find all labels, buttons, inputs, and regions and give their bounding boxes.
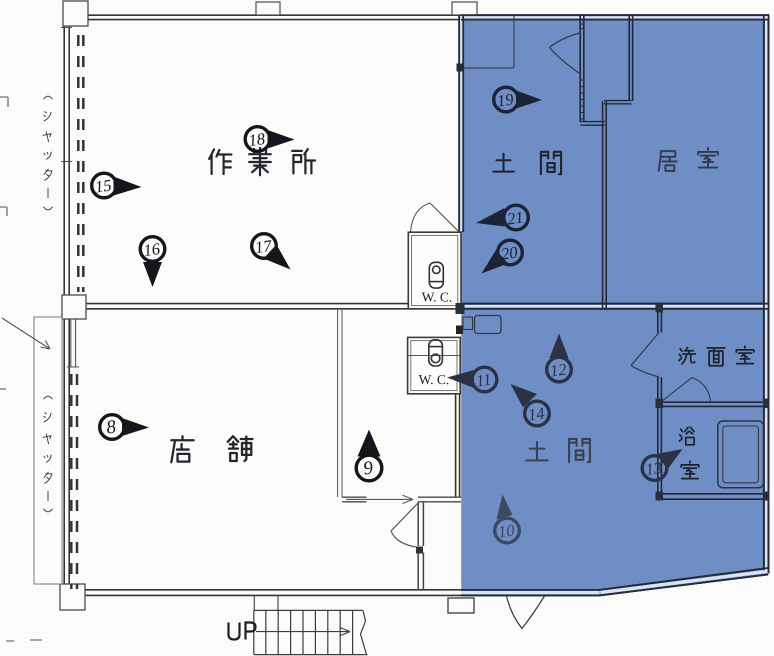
svg-text:14: 14 — [527, 403, 546, 424]
svg-text:18: 18 — [247, 129, 267, 150]
svg-text:19: 19 — [496, 89, 515, 110]
svg-text:11: 11 — [475, 370, 493, 391]
svg-text:20: 20 — [500, 242, 520, 263]
svg-text:W. C.: W. C. — [419, 372, 450, 387]
svg-text:21: 21 — [506, 207, 525, 228]
svg-text:13: 13 — [644, 458, 663, 479]
svg-text:10: 10 — [497, 520, 517, 541]
svg-text:16: 16 — [142, 239, 162, 260]
svg-text:15: 15 — [94, 175, 113, 196]
svg-text:17: 17 — [254, 236, 274, 257]
svg-text:W. C.: W. C. — [422, 289, 453, 304]
svg-text:12: 12 — [549, 359, 568, 380]
